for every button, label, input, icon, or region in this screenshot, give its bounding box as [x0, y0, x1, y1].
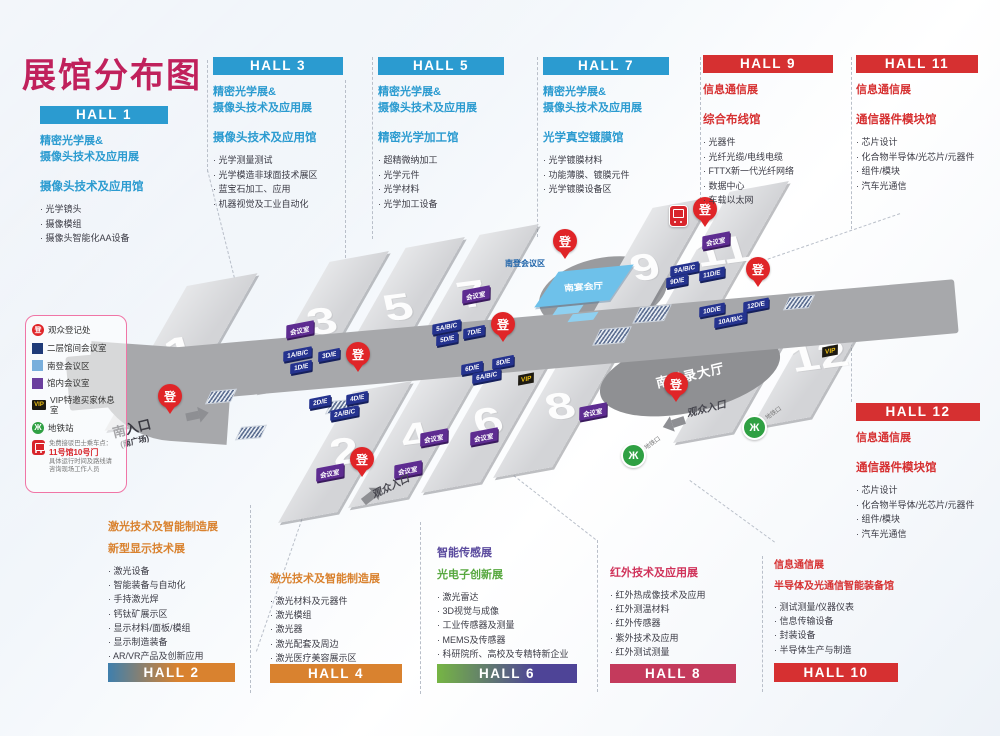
legend-item: 南登会议区	[32, 360, 120, 371]
hall-panel-header-hall9: HALL 9	[703, 55, 833, 73]
legend-item: 馆内会议室	[32, 378, 120, 389]
hall-info-panel-hall7: HALL 7精密光学展&摄像头技术及应用展光学真空镀膜馆光学镀膜材料功能薄膜、镀…	[543, 57, 669, 197]
hall-info-panel-hall10: 信息通信展半导体及光通信智能装备馆测试测量/仪器仪表信息传输设备封装设备半导体生…	[774, 558, 898, 682]
bullet-item: 功能薄膜、镀膜元件	[543, 168, 669, 183]
registration-pin-entrance: 登	[158, 384, 182, 408]
registration-pin-h2: 登	[350, 447, 374, 471]
expo-title-line: 智能传感展	[437, 546, 577, 561]
bullet-item: 光学镀膜材料	[543, 153, 669, 168]
expo-title-line: 精密光学展&	[213, 84, 343, 100]
expo-title-line: 信息通信展	[856, 430, 980, 446]
hall-info-panel-hall4: 激光技术及智能制造展激光材料及元器件激光模组激光器激光配套及周边激光医疗美容展示…	[270, 572, 402, 683]
registration-pin-h3: 登	[346, 342, 370, 366]
expo-title: 精密光学展&摄像头技术及应用展	[543, 84, 669, 116]
bullet-list: 红外热成像技术及应用红外测温材料红外传感器紫外技术及应用红外测试测量	[610, 588, 736, 659]
bullet-item: 激光模组	[270, 608, 402, 622]
bullet-item: 组件/模块	[856, 164, 978, 179]
hall-banner-hall4: HALL 4	[270, 664, 402, 683]
bullet-item: AR/VR产品及创新应用	[108, 649, 235, 663]
legend-item: VIPVIP特邀买家休息室	[32, 395, 120, 415]
bullet-item: 化合物半导体/光芯片/元器件	[856, 150, 978, 165]
hall-panel-header-hall3: HALL 3	[213, 57, 343, 75]
vip-badge-icon: VIP	[32, 400, 46, 410]
bullet-item: 光学镀膜设备区	[543, 182, 669, 197]
hall-info-panel-hall12: HALL 12信息通信展通信器件模块馆芯片设计化合物半导体/光芯片/元器件组件/…	[856, 403, 980, 541]
bullet-item: 智能装备与自动化	[108, 578, 235, 592]
bullet-item: 汽车光通信	[856, 527, 980, 542]
expo-title-line: 精密光学展&	[40, 133, 168, 149]
bullet-item: 显示材料/面板/模组	[108, 621, 235, 635]
hall-info-panel-hall9: HALL 9信息通信展综合布线馆光器件光纤光缆/电线电缆FTTX新一代光纤网络数…	[703, 55, 833, 208]
bullet-item: 光学模造非球面技术展区	[213, 168, 343, 183]
shuttle-bus-icon	[669, 205, 688, 227]
expo-title-line: 红外技术及应用展	[610, 566, 736, 581]
bullet-item: 汽车光通信	[856, 179, 978, 194]
hall-banner-hall10: HALL 10	[774, 663, 898, 682]
bullet-item: 芯片设计	[856, 135, 978, 150]
legend-items: 登观众登记处二层馆间会议室南登会议区馆内会议室VIPVIP特邀买家休息室Ж地铁站…	[32, 324, 120, 474]
legend-label: 地铁站	[48, 423, 74, 433]
venue-title: 摄像头技术及应用馆	[213, 129, 343, 145]
hall-info-panel-hall11: HALL 11信息通信展通信器件模块馆芯片设计化合物半导体/光芯片/元器件组件/…	[856, 55, 978, 193]
legend-label-line: 11号馆10号门	[49, 448, 112, 458]
hall-panel-header-hall7: HALL 7	[543, 57, 669, 75]
expo-title-line: 新型显示技术展	[108, 542, 235, 557]
expo-title: 精密光学展&摄像头技术及应用展	[213, 84, 343, 116]
map-hall-number: 8	[539, 384, 580, 429]
bullet-item: 红外热成像技术及应用	[610, 588, 736, 602]
legend-label: 馆内会议室	[47, 378, 90, 388]
legend-label: 二层馆间会议室	[47, 343, 107, 353]
hall-banner-hall2: HALL 2	[108, 663, 235, 682]
bullet-item: 数据中心	[703, 179, 833, 194]
venue-title: 通信器件模块馆	[856, 459, 980, 475]
bullet-item: 激光器	[270, 622, 402, 636]
hall-info-panel-hall8: 红外技术及应用展红外热成像技术及应用红外测温材料红外传感器紫外技术及应用红外测试…	[610, 566, 736, 683]
legend-label-line: 免费接驳巴士乘车点：	[49, 440, 112, 448]
bullet-item: 光器件	[703, 135, 833, 150]
expo-title-line: 信息通信展	[703, 82, 833, 98]
bullet-item: 蓝宝石加工、应用	[213, 182, 343, 197]
expo-title-line: 摄像头技术及应用展	[40, 149, 168, 165]
legend-item: 免费接驳巴士乘车点：11号馆10号门具体运行时间及路线请咨询现场工作人员	[32, 440, 120, 474]
navy-square-icon	[32, 343, 43, 354]
bullet-item: 半导体生产与制造	[774, 643, 898, 657]
hall-info-panel-hall1: HALL 1精密光学展&摄像头技术及应用展摄像头技术及应用馆光学镜头摄像模组摄像…	[40, 106, 168, 246]
bullet-list: 超精微纳加工光学元件光学材料光学加工设备	[378, 153, 504, 211]
expo-title-line: 摄像头技术及应用展	[213, 100, 343, 116]
bullet-item: 激光雷达	[437, 590, 577, 604]
bullet-item: 封装设备	[774, 628, 898, 642]
legend-label: VIP特邀买家休息室	[50, 395, 120, 415]
purple-square-icon	[32, 378, 43, 389]
bullet-item: 光学加工设备	[378, 197, 504, 212]
bullet-item: 激光配套及周边	[270, 637, 402, 651]
bullet-item: 测试测量/仪器仪表	[774, 600, 898, 614]
bullet-item: 化合物半导体/光芯片/元器件	[856, 498, 980, 513]
expo-title-line: 精密光学展&	[378, 84, 504, 100]
expo-title: 精密光学展&摄像头技术及应用展	[378, 84, 504, 116]
bullet-item: 紫外技术及应用	[610, 631, 736, 645]
bullet-item: 芯片设计	[856, 483, 980, 498]
bullet-list: 光学镜头摄像模组摄像头智能化AA设备	[40, 202, 168, 246]
bullet-item: 显示制造装备	[108, 635, 235, 649]
hall-banner-hall8: HALL 8	[610, 664, 736, 683]
bullet-item: 超精微纳加工	[378, 153, 504, 168]
hall-info-panel-hall2: 激光技术及智能制造展新型显示技术展激光设备智能装备与自动化手持激光焊钙钛矿展示区…	[108, 520, 235, 682]
legend-item: 登观众登记处	[32, 324, 120, 336]
legend-label: 免费接驳巴士乘车点：11号馆10号门具体运行时间及路线请咨询现场工作人员	[49, 440, 112, 474]
bullet-item: 摄像模组	[40, 217, 168, 232]
south-meeting-zone-label: 南登会议区	[505, 258, 545, 269]
registration-pin-east: 登	[664, 372, 688, 396]
registration-pin-icon: 登	[32, 324, 44, 336]
legend-label-line: 咨询现场工作人员	[49, 466, 112, 474]
bullet-item: 信息传输设备	[774, 614, 898, 628]
expo-title-line: 精密光学展&	[543, 84, 669, 100]
bullet-item: 手持激光焊	[108, 592, 235, 606]
expo-title-line: 激光技术及智能制造展	[108, 520, 235, 535]
expo-title-line: 摄像头技术及应用展	[378, 100, 504, 116]
expo-title-line: 半导体及光通信智能装备馆	[774, 579, 898, 594]
legend-label: 南登会议区	[47, 361, 90, 371]
hall-panel-header-hall5: HALL 5	[378, 57, 504, 75]
map-hall-number: 5	[377, 285, 418, 330]
bullet-item: 激光设备	[108, 564, 235, 578]
bullet-item: 光学镜头	[40, 202, 168, 217]
expo-title-line: 激光技术及智能制造展	[270, 572, 402, 587]
bullet-item: 科研院所、高校及专精特新企业	[437, 647, 577, 661]
bullet-item: MEMS及传感器	[437, 633, 577, 647]
bullet-list: 光器件光纤光缆/电线电缆FTTX新一代光纤网络数据中心车载以太网	[703, 135, 833, 208]
metro-station-icon: Ж	[742, 415, 767, 440]
expo-title-line: 信息通信展	[774, 558, 898, 573]
legend-label-line: 具体运行时间及路线请	[49, 458, 112, 466]
hall-panel-header-hall1: HALL 1	[40, 106, 168, 124]
venue-title: 摄像头技术及应用馆	[40, 178, 168, 194]
bullet-list: 激光材料及元器件激光模组激光器激光配套及周边激光医疗美容展示区	[270, 594, 402, 665]
venue-title: 光学真空镀膜馆	[543, 129, 669, 145]
shuttle-bus-icon	[32, 440, 45, 455]
expo-title: 信息通信展	[703, 82, 833, 98]
registration-pin-banquet: 登	[553, 229, 577, 253]
bullet-item: 机器视觉及工业自动化	[213, 197, 343, 212]
bullet-list: 测试测量/仪器仪表信息传输设备封装设备半导体生产与制造	[774, 600, 898, 657]
venue-title: 综合布线馆	[703, 111, 833, 127]
expo-title: 信息通信展	[856, 82, 978, 98]
bullet-item: 车载以太网	[703, 193, 833, 208]
hall-info-panel-hall5: HALL 5精密光学展&摄像头技术及应用展精密光学加工馆超精微纳加工光学元件光学…	[378, 57, 504, 211]
bullet-item: 3D视觉与成像	[437, 604, 577, 618]
bullet-item: 光学测量测试	[213, 153, 343, 168]
bullet-item: 红外传感器	[610, 616, 736, 630]
hall-banner-hall6: HALL 6	[437, 664, 577, 683]
venue-title: 精密光学加工馆	[378, 129, 504, 145]
expo-title-line: 光电子创新展	[437, 568, 577, 583]
bullet-item: 光学元件	[378, 168, 504, 183]
hall-info-panel-hall6: 智能传感展光电子创新展激光雷达3D视觉与成像工业传感器及测量MEMS及传感器科研…	[437, 546, 577, 683]
bullet-list: 光学镀膜材料功能薄膜、镀膜元件光学镀膜设备区	[543, 153, 669, 197]
bullet-item: 摄像头智能化AA设备	[40, 231, 168, 246]
bullet-item: 组件/模块	[856, 512, 980, 527]
bullet-list: 芯片设计化合物半导体/光芯片/元器件组件/模块汽车光通信	[856, 483, 980, 541]
hall-panel-header-hall12: HALL 12	[856, 403, 980, 421]
hall-info-panel-hall3: HALL 3精密光学展&摄像头技术及应用展摄像头技术及应用馆光学测量测试光学模造…	[213, 57, 343, 211]
legend-item: Ж地铁站	[32, 422, 120, 434]
expo-title: 信息通信展	[856, 430, 980, 446]
expo-title-line: 摄像头技术及应用展	[543, 100, 669, 116]
metro-badge-icon: Ж	[32, 422, 44, 434]
venue-title: 通信器件模块馆	[856, 111, 978, 127]
map-legend: 登观众登记处二层馆间会议室南登会议区馆内会议室VIPVIP特邀买家休息室Ж地铁站…	[25, 315, 127, 493]
bullet-item: 光学材料	[378, 182, 504, 197]
exhibition-hall-map-page: 展馆分布图 135791124681012 南登录大厅 南宴会厅 南登会议区 1…	[0, 0, 1000, 736]
registration-pin-h5: 登	[491, 312, 515, 336]
bullet-item: 钙钛矿展示区	[108, 607, 235, 621]
bullet-list: 光学测量测试光学模造非球面技术展区蓝宝石加工、应用机器视觉及工业自动化	[213, 153, 343, 211]
bullet-item: 红外测温材料	[610, 602, 736, 616]
bullet-list: 激光雷达3D视觉与成像工业传感器及测量MEMS及传感器科研院所、高校及专精特新企…	[437, 590, 577, 661]
metro-exit-label: 地铁口	[642, 434, 662, 452]
bullet-item: 激光材料及元器件	[270, 594, 402, 608]
expo-title: 精密光学展&摄像头技术及应用展	[40, 133, 168, 165]
bullet-item: FTTX新一代光纤网络	[703, 164, 833, 179]
hall-panel-header-hall11: HALL 11	[856, 55, 978, 73]
bullet-item: 激光医疗美容展示区	[270, 651, 402, 665]
bullet-item: 光纤光缆/电线电缆	[703, 150, 833, 165]
bullet-list: 芯片设计化合物半导体/光芯片/元器件组件/模块汽车光通信	[856, 135, 978, 193]
bullet-list: 激光设备智能装备与自动化手持激光焊钙钛矿展示区显示材料/面板/模组显示制造装备A…	[108, 564, 235, 663]
legend-item: 二层馆间会议室	[32, 343, 120, 354]
expo-title-line: 信息通信展	[856, 82, 978, 98]
metro-station-icon: Ж	[621, 443, 646, 468]
legend-label: 观众登记处	[48, 325, 91, 335]
bullet-item: 工业传感器及测量	[437, 618, 577, 632]
escalator-icon	[235, 425, 267, 441]
bullet-item: 红外测试测量	[610, 645, 736, 659]
registration-pin-h9e: 登	[746, 257, 770, 281]
south-banquet-hall-label: 南宴会厅	[564, 279, 605, 294]
lightblue-square-icon	[32, 360, 43, 371]
